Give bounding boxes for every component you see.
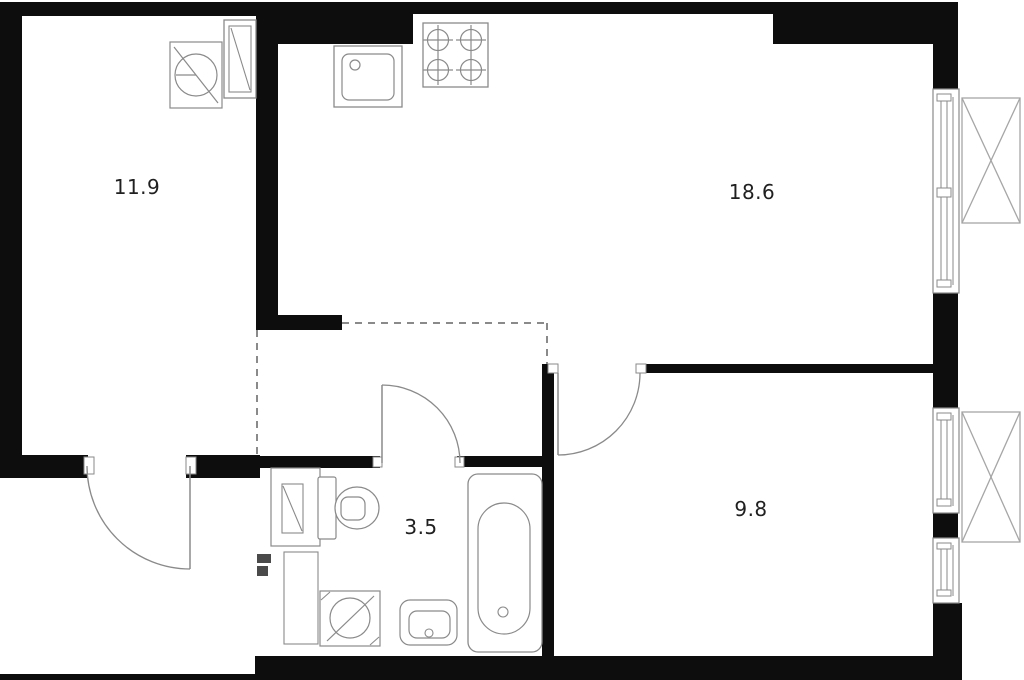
bathtub: [468, 474, 542, 652]
room-area-label-room-living: 11.9: [114, 175, 161, 199]
window-bedroom-2: [933, 538, 959, 603]
washbasin: [400, 600, 457, 645]
bathroom-vent-symbol: [271, 468, 320, 546]
room-area-label-bathroom: 3.5: [404, 515, 437, 539]
room-area-label-room-kitchen: 18.6: [729, 180, 776, 204]
kitchen-stove: [423, 23, 488, 87]
window-kitchen: [933, 89, 959, 293]
floor-plan: 11.918.63.59.8: [0, 0, 1024, 680]
vent-duct-symbol: [224, 20, 256, 98]
floor-plan-drawing: 11.918.63.59.8: [0, 0, 1024, 680]
room-area-label-room-bedroom: 9.8: [734, 497, 767, 521]
window-bedroom-1: [933, 408, 959, 513]
kitchen-sink: [334, 46, 402, 107]
washing-machine: [320, 591, 380, 646]
